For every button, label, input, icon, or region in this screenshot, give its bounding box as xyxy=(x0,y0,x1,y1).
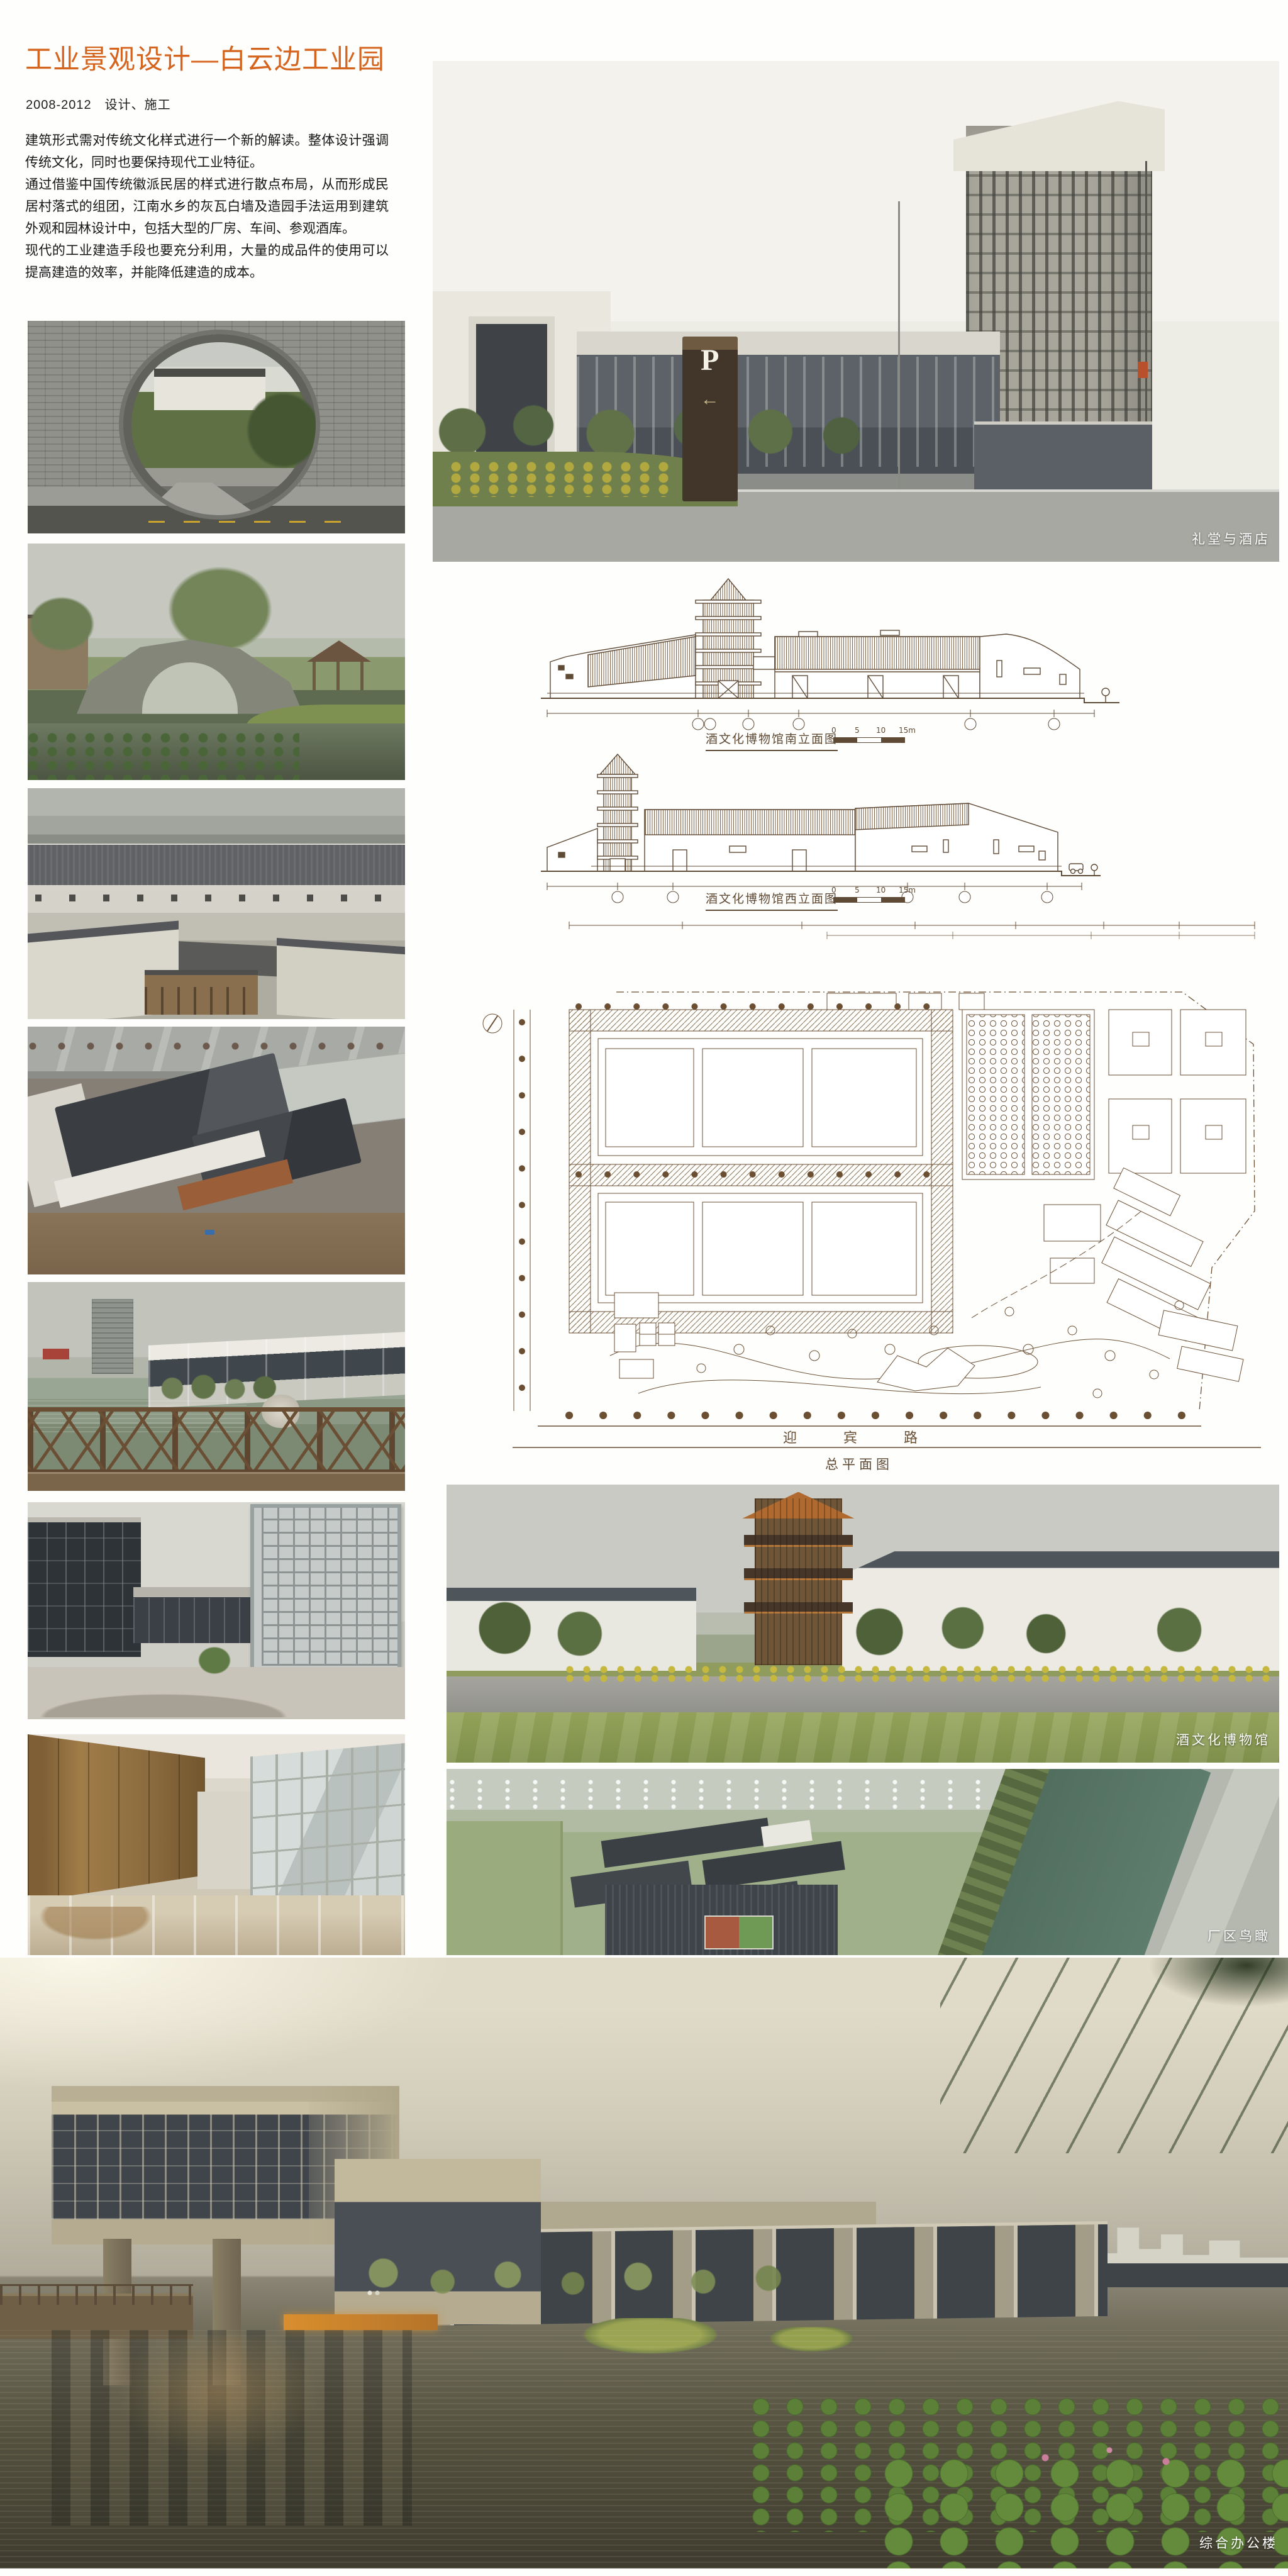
caption-office-building: 综合办公楼 xyxy=(1199,2533,1278,2552)
red-billboard xyxy=(43,1349,69,1359)
photo-hall-hotel: P ← 礼堂与酒店 xyxy=(433,61,1279,562)
lattice-grid xyxy=(262,1508,397,1666)
bamboo-grove xyxy=(225,381,320,490)
end-wall xyxy=(197,1792,254,1888)
caption-factory-aerial: 厂区鸟瞰 xyxy=(1207,1926,1270,1945)
courtyard-shrub xyxy=(186,1639,243,1682)
photo-moon-gate xyxy=(28,321,405,533)
warm-reflection xyxy=(77,2336,361,2519)
parking-sign-letter: P xyxy=(682,343,737,377)
caption-wine-museum: 酒文化博物馆 xyxy=(1176,1730,1270,1749)
window-band xyxy=(35,895,397,901)
photo-aerial-construction xyxy=(28,1027,405,1274)
glass-block-mullions xyxy=(28,1517,141,1652)
wooden-railing xyxy=(28,1407,405,1475)
deck-planks xyxy=(28,1472,405,1491)
pavilion-posts xyxy=(313,662,365,690)
scale-10: 10 xyxy=(876,886,885,895)
south-elevation-drawing xyxy=(528,574,1126,731)
blue-car xyxy=(205,1230,214,1235)
photo-office-building: 综合办公楼 xyxy=(0,1958,1288,2568)
road-yellow-line xyxy=(148,521,356,523)
tower-windows xyxy=(92,1299,133,1374)
site-plan-road-label: 迎宾路 xyxy=(783,1430,964,1446)
street-trees xyxy=(28,1042,405,1051)
tower-white-cap xyxy=(953,101,1165,171)
hoist-cab xyxy=(1138,362,1148,378)
presentation-board: 工业景观设计—白云边工业园 2008-2012 设计、施工 建筑形式需对传统文化… xyxy=(0,0,1288,2576)
photo-village-rooftops xyxy=(28,788,405,1019)
basketball-courts xyxy=(704,1915,774,1949)
scale-10: 10 xyxy=(876,726,885,735)
people-figures xyxy=(367,2290,386,2302)
sunlit-deck-edge xyxy=(284,2314,438,2330)
south-elevation-scalebar: 0 5 10 15m xyxy=(833,726,909,746)
intro-paragraphs: 建筑形式需对传统文化样式进行一个新的解读。整体设计强调传统文化，同时也要保持现代… xyxy=(25,130,389,284)
west-elevation-drawing xyxy=(528,752,1126,906)
site-master-plan-drawing: 迎宾路 xyxy=(475,915,1286,1451)
white-gable-right xyxy=(277,938,405,1019)
intro-paragraph-2: 通过借鉴中国传统徽派民居的样式进行散点布局，从而形成民居村落式的组团，江南水乡的… xyxy=(25,174,389,240)
project-years-meta: 2008-2012 设计、施工 xyxy=(26,94,171,113)
lamp-pole xyxy=(898,201,900,492)
stone-path xyxy=(28,1680,322,1717)
scale-bar xyxy=(833,897,905,903)
intro-paragraph-3: 现代的工业建造手段也要充分利用，大量的成品件的使用可以提高建造的效率，并能降低建… xyxy=(25,240,389,284)
scale-15: 15m xyxy=(899,886,916,895)
photo-arch-bridge xyxy=(28,544,405,780)
boardwalk-railing xyxy=(0,2284,193,2304)
yellow-hedge xyxy=(563,1665,1279,1682)
south-elevation-title: 酒文化博物馆南立面图 xyxy=(706,730,838,751)
yellow-shrubs xyxy=(450,462,670,497)
scale-5: 5 xyxy=(855,886,860,895)
photo-waterfront-deck xyxy=(28,1282,405,1491)
side-trees xyxy=(28,577,118,671)
asphalt-drive xyxy=(447,1676,1279,1718)
photo-lattice-courtyard xyxy=(28,1502,405,1719)
caption-hall-hotel: 礼堂与酒店 xyxy=(1192,529,1270,548)
lotus-buds xyxy=(1034,2445,1185,2483)
west-elevation-title: 酒文化博物馆西立面图 xyxy=(706,889,838,911)
floor-wood-reflection xyxy=(35,1907,186,1955)
photo-interior-corridor xyxy=(28,1734,405,1955)
wood-panel-wall xyxy=(28,1734,205,1902)
lotus-pads xyxy=(28,733,299,780)
scale-bar xyxy=(833,737,905,743)
bridge-arch-opening xyxy=(142,662,237,714)
west-elevation-scalebar: 0 5 10 15m xyxy=(833,886,909,906)
moon-gate-opening xyxy=(119,330,320,520)
intro-paragraph-1: 建筑形式需对传统文化样式进行一个新的解读。整体设计强调传统文化，同时也要保持现代… xyxy=(25,130,389,174)
veranda-posts xyxy=(145,987,258,1015)
white-block xyxy=(761,1820,813,1848)
dirt-ground xyxy=(28,1213,405,1275)
warehouse-roof-texture xyxy=(28,844,405,886)
corridor-mullions xyxy=(133,1598,269,1643)
scale-5: 5 xyxy=(855,726,860,735)
waterfront-trees xyxy=(348,2239,940,2324)
parking-sign: P ← xyxy=(682,337,737,502)
willow-branches xyxy=(940,1958,1288,2153)
photo-factory-aerial: 厂区鸟瞰 xyxy=(447,1769,1279,1955)
field-left xyxy=(447,1821,563,1955)
page-title: 工业景观设计—白云边工业园 xyxy=(25,38,385,77)
site-plan-title: 总平面图 xyxy=(825,1454,893,1473)
parking-sign-arrow: ← xyxy=(682,389,737,410)
pavilion-roof xyxy=(307,640,371,662)
scale-0: 0 xyxy=(831,886,836,895)
scale-15: 15m xyxy=(899,726,916,735)
scale-0: 0 xyxy=(831,726,836,735)
front-lawn xyxy=(447,1712,1279,1763)
distant-glass-band xyxy=(1108,2263,1288,2288)
photo-wine-museum: 酒文化博物馆 xyxy=(447,1485,1279,1763)
